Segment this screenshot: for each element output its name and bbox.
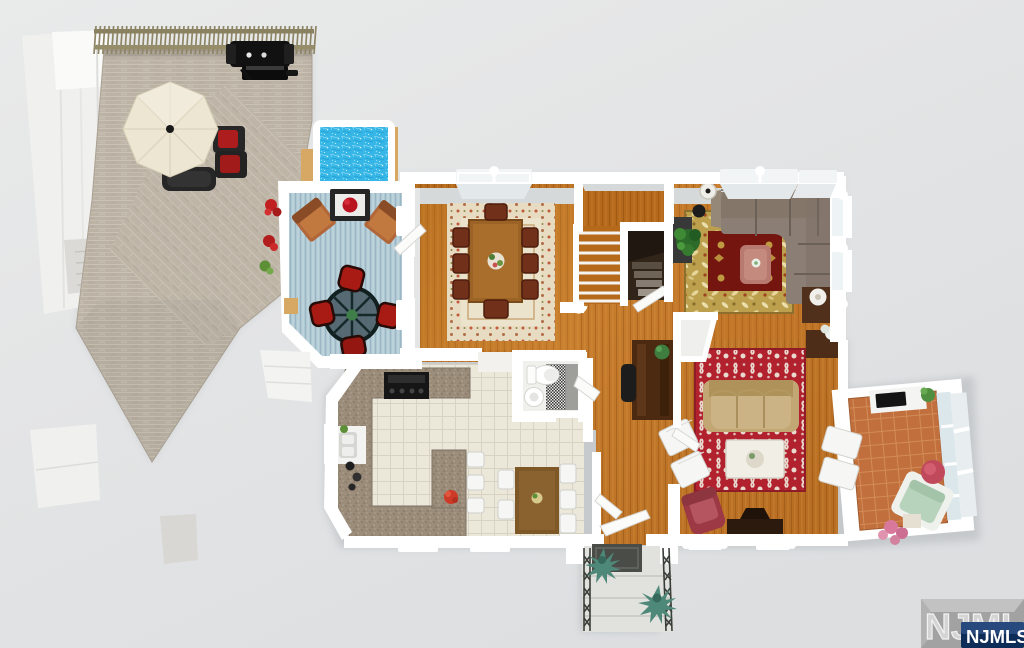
svg-text:NJMLS: NJMLS — [966, 626, 1024, 647]
